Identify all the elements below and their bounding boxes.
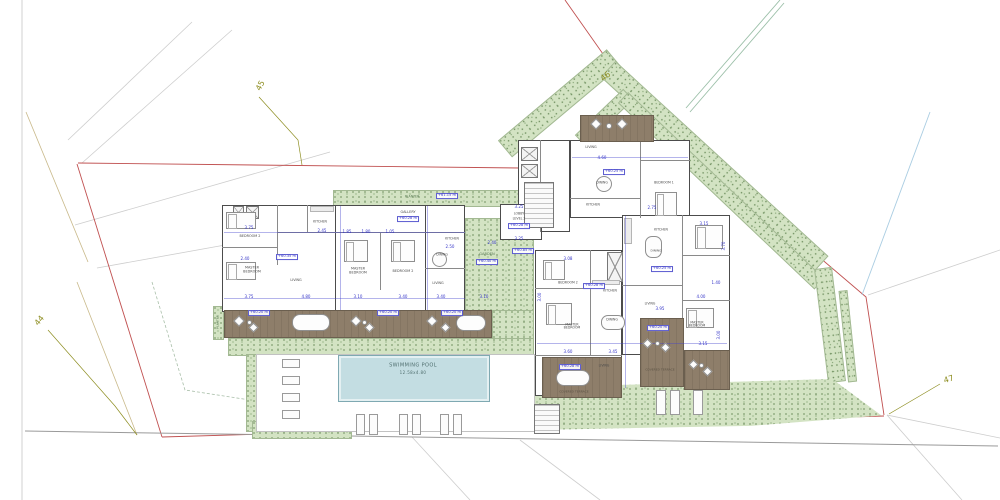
dim-label: 2.40 <box>241 257 250 261</box>
room-label-dining: DINING <box>436 253 448 256</box>
dimension-line <box>427 206 428 310</box>
planter-side-label: PLANTER <box>216 315 219 329</box>
gallery-level: +60.28 m <box>397 216 419 222</box>
dim-label: 2.40 <box>488 241 497 245</box>
dim-label: 1.40 <box>712 281 721 285</box>
dim-label: 4.60 <box>598 156 607 160</box>
level-label: +60.20 m <box>441 310 463 316</box>
dim-label: 3.75 <box>245 226 254 230</box>
sun-lounger <box>282 376 300 385</box>
road-lines <box>25 431 998 446</box>
room-label-bedroom2: BEDROOM 2 <box>240 235 261 239</box>
lobby-level-below: +60.85 m <box>512 248 534 254</box>
wall <box>380 232 381 290</box>
dim-label: 3.75 <box>245 295 254 299</box>
level-label: +60.35 m <box>276 254 298 260</box>
level-label: +60.28 m <box>559 364 581 370</box>
bed <box>695 225 723 249</box>
dim-label: 3.08 <box>564 257 573 261</box>
site-plan-canvas: SWIMMING POOL 12.58x4.80 <box>0 0 1000 500</box>
lift-shaft <box>521 164 538 178</box>
dim-label: 3.10 <box>480 295 489 299</box>
side-table <box>699 363 704 368</box>
dim-label: 3.70 <box>722 242 726 251</box>
dimension-line <box>572 157 688 158</box>
room-label-kitchen: KITCHEN <box>603 289 617 292</box>
dim-label: 3.00 <box>538 293 542 302</box>
terrace-label: COVERED TERRACE <box>645 368 674 371</box>
dimension-line <box>625 216 626 388</box>
room-label-living: LIVING <box>585 146 596 150</box>
sun-lounger <box>369 414 378 435</box>
dim-label: 3.25 <box>515 205 524 209</box>
side-table <box>655 341 660 346</box>
dim-label: 3.00 <box>717 331 721 340</box>
level-label: +60.20 m <box>647 325 669 331</box>
gallery-label: GALLERY <box>400 211 415 215</box>
room-label-master: MASTER BEDROOM <box>345 267 371 274</box>
sun-lounger <box>670 390 680 415</box>
dim-label: 3.40 <box>437 295 446 299</box>
room-label-kitchen: KITCHEN <box>654 228 668 231</box>
terrace-label: COVERED TERRACE <box>559 390 588 393</box>
dim-label: 1.05 <box>386 230 395 234</box>
dim-label: 2.45 <box>318 229 327 233</box>
dim-label: 3.15 <box>700 222 709 226</box>
level-label: +60.25 m <box>651 266 673 272</box>
level-label: +60.25 m <box>603 169 625 175</box>
wall <box>622 285 682 286</box>
dining-table <box>456 315 486 331</box>
sun-lounger <box>282 359 300 368</box>
wall <box>682 255 730 256</box>
garden-area <box>492 310 534 340</box>
wall <box>570 198 640 199</box>
wall <box>425 205 426 312</box>
dim-label: 2.75 <box>648 206 657 210</box>
side-table <box>362 320 367 325</box>
dim-label: 4.00 <box>697 295 706 299</box>
dim-label: 3.45 <box>609 350 618 354</box>
wall <box>535 355 622 356</box>
sun-lounger <box>453 414 462 435</box>
room-label-dining: DINING <box>596 181 608 184</box>
room-label-bedroom2: BEDROOM 2 <box>393 270 414 274</box>
dim-label: 3.60 <box>564 350 573 354</box>
lift-shaft <box>521 147 538 161</box>
pool-size-label: 12.58x4.80 <box>400 371 427 375</box>
lobby-floor-label: LEVEL 2 <box>513 217 526 220</box>
room-label-living: LIVING <box>290 279 301 283</box>
dim-label: 3.15 <box>699 342 708 346</box>
terrace-deck-top <box>580 115 654 142</box>
dining-table <box>292 314 330 331</box>
utility-blue-line <box>862 112 930 295</box>
terrain-lines <box>26 112 137 435</box>
room-label-living: LIVING <box>432 282 443 286</box>
sun-lounger <box>356 414 365 435</box>
side-table <box>606 123 612 129</box>
wall <box>222 247 277 248</box>
side-table <box>247 320 252 325</box>
staircase <box>524 182 554 228</box>
bed <box>655 192 677 216</box>
room-label-bedroom2: BEDROOM 2 <box>558 281 578 284</box>
dim-label: 1.80 <box>362 230 371 234</box>
sun-lounger <box>693 390 703 415</box>
planter-top-label: PLANTER <box>405 195 420 198</box>
room-label-kitchen: KITCHEN <box>445 237 459 240</box>
wall <box>640 140 641 218</box>
room-label-bedroom1: BEDROOM 1 <box>654 181 674 184</box>
room-label-kitchen: KITCHEN <box>313 220 327 223</box>
sun-lounger <box>656 390 666 415</box>
bed <box>543 260 565 280</box>
dim-label: 4.80 <box>302 295 311 299</box>
room-label-dining: DINING <box>651 249 662 252</box>
room-label-dining: DINING <box>606 318 618 321</box>
bed <box>391 240 415 262</box>
level-label: +60.28 m <box>583 283 605 289</box>
level-label: +60.20 m <box>248 310 270 316</box>
kitchen-counter <box>310 206 334 212</box>
wall <box>307 205 308 232</box>
wall <box>425 268 465 269</box>
pool-label: SWIMMING POOL <box>389 363 437 368</box>
sun-lounger <box>282 410 300 419</box>
lobby-level: +60.28 m <box>508 223 530 229</box>
closet <box>607 252 623 282</box>
wall <box>682 300 730 301</box>
room-label-master: MASTER BEDROOM <box>239 266 265 273</box>
sun-lounger <box>412 414 421 435</box>
dimension-line <box>340 206 341 310</box>
outdoor-table <box>556 370 590 386</box>
sun-lounger <box>440 414 449 435</box>
dim-label: 3.95 <box>656 307 665 311</box>
dim-label: 3.25 <box>515 237 524 241</box>
planter-top-level: +61.15 m <box>436 193 458 199</box>
room-label-kitchen: KITCHEN <box>586 203 600 206</box>
level-label: +60.20 m <box>377 310 399 316</box>
garden-label: GARDEN <box>479 253 494 257</box>
dim-label: 1.85 <box>343 230 352 234</box>
green-boundary-lines <box>686 0 784 112</box>
dim-label: 2.50 <box>446 245 455 249</box>
wall <box>335 205 336 312</box>
bed <box>344 240 368 262</box>
garden-level: +60.40 m <box>476 259 498 265</box>
room-label-master: MASTER BEDROOM <box>684 322 710 329</box>
lobby-label: LOBBY <box>514 212 524 215</box>
room-label-living: LIVING <box>645 302 656 305</box>
dim-label: 3.10 <box>354 295 363 299</box>
sun-lounger <box>282 393 300 402</box>
dimension-line <box>224 298 465 299</box>
room-label-living: LIVING <box>599 364 610 367</box>
wall <box>640 160 690 161</box>
sun-lounger <box>399 414 408 435</box>
dining-table <box>645 236 662 258</box>
wall <box>590 250 591 356</box>
outdoor-steps <box>534 404 560 434</box>
dim-label: 3.40 <box>399 295 408 299</box>
wall <box>535 288 590 289</box>
room-label-master: MASTER BEDROOM <box>559 324 585 331</box>
